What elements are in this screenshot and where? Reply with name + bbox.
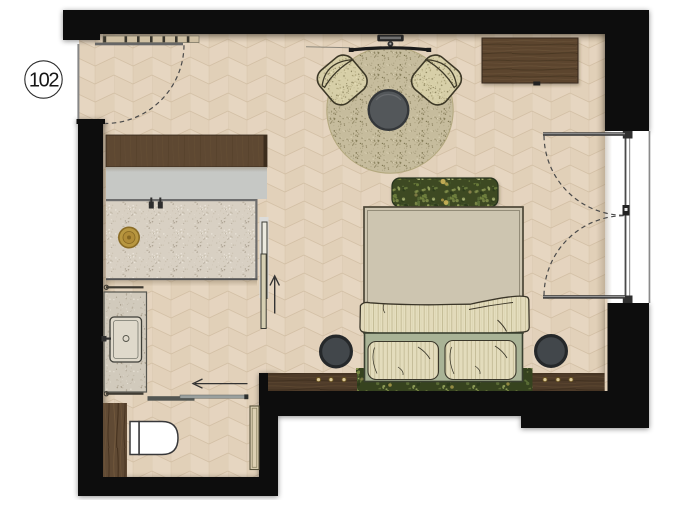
svg-text:102: 102 xyxy=(29,70,59,92)
